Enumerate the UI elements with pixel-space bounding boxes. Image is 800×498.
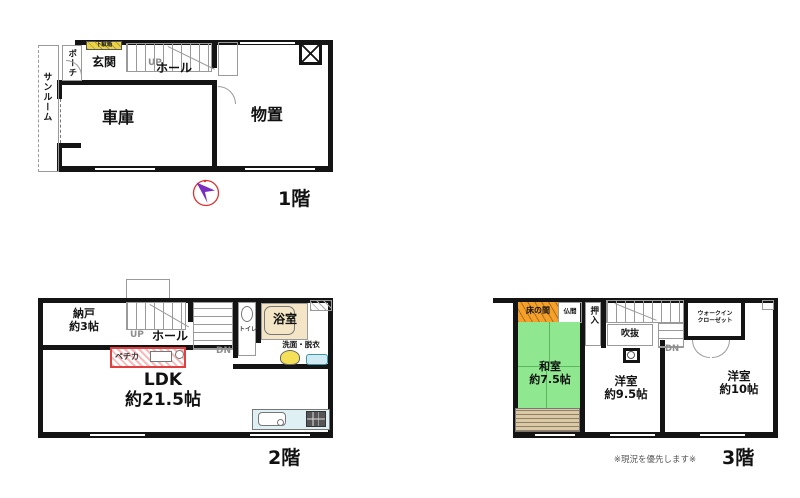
wall <box>57 143 81 148</box>
toilet-label: トイレ <box>239 327 257 334</box>
garage-label: 車庫 <box>102 109 134 127</box>
washitsu-label: 和室 約7.5帖 <box>529 361 571 386</box>
wic-label: ウォークイン クローゼット <box>698 311 733 324</box>
wall <box>212 80 217 172</box>
storage-label: 物置 <box>251 106 283 124</box>
stairs-up <box>126 302 186 330</box>
genkan-label: 玄関 <box>92 56 116 70</box>
pechka-ring <box>175 350 184 359</box>
tokonoma-label: 床の間 <box>526 306 550 315</box>
note-label: ※現況を優先します※ <box>614 456 696 466</box>
door-arc <box>712 340 730 358</box>
floor2-label: 2階 <box>268 448 300 470</box>
board-strip <box>515 408 580 432</box>
stairs-down-label: DN <box>216 346 231 356</box>
washbasin <box>280 350 300 365</box>
oshiire-label: 押入 <box>588 306 598 325</box>
stairs-down-label: DN <box>665 345 679 355</box>
wall <box>684 298 688 340</box>
chimney-ring <box>627 351 635 359</box>
nando-label: 納戸 約3帖 <box>69 308 99 333</box>
yoshitsu95-label: 洋室 約9.5帖 <box>604 375 647 401</box>
pechka-label: ペチカ <box>115 352 139 361</box>
sunroom-label: サンルーム <box>41 72 51 122</box>
fukinuke-label: 吹抜 <box>621 329 639 339</box>
wall <box>328 40 333 172</box>
wall <box>38 298 43 438</box>
washing-machine-pan <box>306 354 328 365</box>
window <box>610 433 655 437</box>
door-arc <box>218 86 236 104</box>
ldk-label: LDK 約21.5帖 <box>125 371 201 410</box>
kitchen-faucet <box>277 419 284 426</box>
floorplan-canvas: サンルーム ポーチ 下駄箱 玄関 UP ホール 車庫 物置 <box>0 0 800 498</box>
shaft-box <box>299 42 322 65</box>
wall <box>773 298 778 438</box>
shoe-cabinet-label: 下駄箱 <box>96 42 113 48</box>
window <box>240 41 295 45</box>
floor1-label: 1階 <box>278 189 310 211</box>
wall <box>741 298 745 340</box>
hall-label: ホール <box>156 62 192 76</box>
bath-label: 浴室 <box>273 313 297 327</box>
wall <box>212 40 217 68</box>
stairs-down <box>193 302 233 350</box>
window <box>95 167 155 171</box>
window-hatch <box>310 300 332 311</box>
pechka-door <box>150 351 172 362</box>
wall <box>580 408 585 432</box>
hall-label: ホール <box>152 330 188 344</box>
compass-north-icon <box>192 179 220 207</box>
corner-box <box>762 300 774 310</box>
garage-door-line <box>60 99 61 143</box>
chimney-bump <box>126 279 170 299</box>
washroom-label: 洗面・脱衣 <box>282 341 320 350</box>
kitchen-stove <box>306 411 326 427</box>
stairs-up-label: UP <box>130 330 144 340</box>
window <box>700 433 745 437</box>
window <box>250 433 310 437</box>
butsuma-label: 仏間 <box>564 308 577 315</box>
floor3-label: 3階 <box>722 448 754 470</box>
window <box>245 167 315 171</box>
window <box>535 433 575 437</box>
window <box>90 433 145 437</box>
toilet-fixture <box>241 306 253 322</box>
yoshitsu10-label: 洋室 約10帖 <box>719 370 758 396</box>
door-arc <box>692 340 710 358</box>
closet-area <box>218 42 238 76</box>
